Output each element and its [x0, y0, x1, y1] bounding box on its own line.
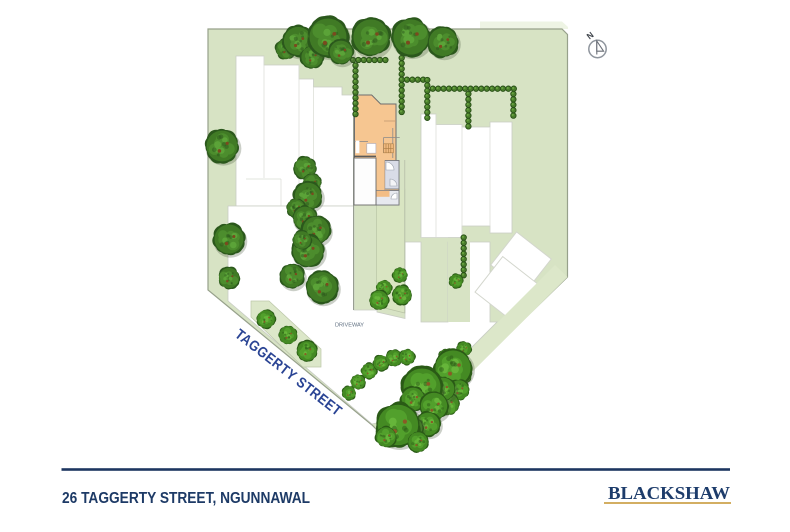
svg-text:BLACKSHAW: BLACKSHAW: [608, 483, 731, 503]
svg-text:26 TAGGERTY STREET, NGUNNAWAL: 26 TAGGERTY STREET, NGUNNAWAL: [62, 490, 310, 507]
svg-text:DRIVEWAY: DRIVEWAY: [335, 323, 364, 329]
